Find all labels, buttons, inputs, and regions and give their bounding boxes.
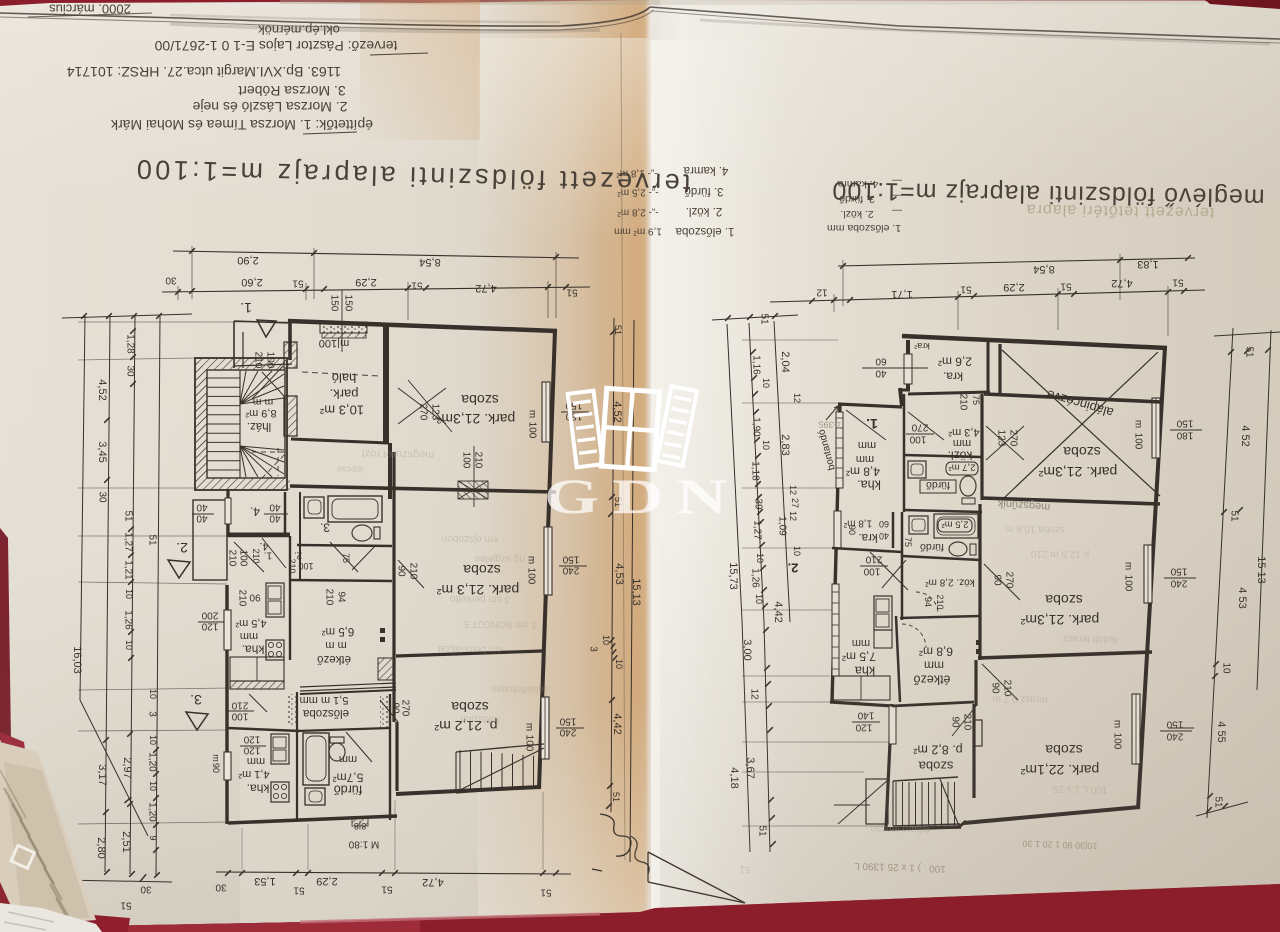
svg-text:10: 10 bbox=[124, 640, 134, 650]
svg-text:150: 150 bbox=[559, 715, 576, 726]
svg-text:1-395: 1-395 bbox=[818, 419, 841, 430]
svg-text:12: 12 bbox=[788, 511, 798, 521]
svg-text:m: m bbox=[526, 410, 537, 418]
svg-text:4,52: 4,52 bbox=[611, 401, 623, 422]
svg-text:lház.: lház. bbox=[247, 420, 271, 432]
svg-text:szoba: szoba bbox=[1063, 444, 1101, 460]
svg-text:2,04: 2,04 bbox=[779, 351, 791, 372]
svg-text:150: 150 bbox=[562, 553, 579, 564]
svg-text:10: 10 bbox=[148, 781, 158, 791]
svg-text:2,7 m²: 2,7 m² bbox=[949, 462, 976, 473]
svg-text:1. előszoba: 1. előszoba bbox=[675, 225, 734, 237]
svg-text:2,60: 2,60 bbox=[241, 276, 262, 288]
svg-text:—: — bbox=[892, 204, 902, 215]
svg-text:6,5 m²: 6,5 m² bbox=[322, 625, 355, 637]
svg-text:4. kamra: 4. kamra bbox=[683, 164, 728, 176]
svg-text:100: 100 bbox=[909, 433, 926, 444]
svg-text:tervező: Pásztor Lajos E-1 0: tervező: Pásztor Lajos E-1 0 1-2671/00 bbox=[154, 38, 397, 54]
svg-text:100: 100 bbox=[525, 568, 536, 585]
svg-text:90: 90 bbox=[249, 591, 261, 602]
svg-text:szoba: szoba bbox=[461, 392, 499, 408]
svg-text:210: 210 bbox=[287, 558, 297, 573]
svg-text:3.: 3. bbox=[320, 521, 330, 535]
svg-text:salakfeltoltes: salakfeltoltes bbox=[491, 683, 549, 695]
svg-text:m: m bbox=[211, 754, 221, 762]
svg-text:60: 60 bbox=[875, 355, 887, 366]
svg-text:2,80: 2,80 bbox=[95, 837, 107, 858]
svg-text:210: 210 bbox=[957, 394, 968, 411]
svg-text:lepcso: lepcso bbox=[337, 465, 363, 475]
svg-text:építtetők: 1. Morzsa Tímea és: építtetők: 1. Morzsa Tímea és Mohai Márk bbox=[110, 117, 373, 133]
svg-text:100: 100 bbox=[526, 422, 537, 439]
svg-text:210: 210 bbox=[252, 352, 263, 369]
svg-text:100: 100 bbox=[237, 550, 248, 567]
svg-text:előszoba: előszoba bbox=[302, 707, 349, 719]
svg-text:10: 10 bbox=[761, 440, 771, 450]
svg-text:100: 100 bbox=[264, 352, 275, 369]
svg-text:feljaro lepcso: feljaro lepcso bbox=[870, 823, 930, 835]
svg-text:210: 210 bbox=[231, 699, 248, 710]
svg-text:270: 270 bbox=[399, 700, 410, 717]
svg-text:-„- 2,8 m²: -„- 2,8 m² bbox=[617, 206, 659, 217]
svg-text:1,20: 1,20 bbox=[146, 752, 157, 772]
svg-text:kra²: kra² bbox=[914, 341, 930, 351]
svg-text:1. előszoba mm: 1. előszoba mm bbox=[827, 222, 901, 234]
svg-text:3,45: 3,45 bbox=[96, 441, 108, 462]
svg-text:m m: m m bbox=[325, 639, 346, 651]
svg-text:4.: 4. bbox=[250, 505, 260, 519]
svg-text:3.: 3. bbox=[190, 692, 202, 708]
svg-text:kha.: kha. bbox=[247, 782, 270, 796]
svg-text:4. kamra: 4. kamra bbox=[837, 178, 878, 190]
svg-text:4,72: 4,72 bbox=[475, 282, 496, 294]
svg-text:park.: park. bbox=[330, 386, 359, 401]
svg-text:12: 12 bbox=[788, 485, 798, 495]
svg-text:51: 51 bbox=[611, 792, 621, 802]
svg-text:1,53: 1,53 bbox=[254, 875, 275, 887]
svg-text:1,71: 1,71 bbox=[891, 288, 912, 300]
svg-text:27: 27 bbox=[790, 498, 800, 508]
svg-text:210: 210 bbox=[251, 548, 261, 563]
svg-text:szoba: szoba bbox=[451, 699, 489, 715]
svg-text:40: 40 bbox=[875, 367, 887, 378]
svg-text:120: 120 bbox=[243, 733, 260, 744]
svg-text:30: 30 bbox=[96, 491, 107, 503]
svg-text:51: 51 bbox=[293, 884, 305, 895]
svg-text:fürdő: fürdő bbox=[334, 783, 363, 797]
svg-text:2,83: 2,83 bbox=[779, 434, 791, 455]
svg-text:51: 51 bbox=[411, 279, 423, 290]
svg-text:1.: 1. bbox=[240, 300, 252, 316]
svg-text:2,90: 2,90 bbox=[237, 254, 258, 266]
svg-text:40: 40 bbox=[269, 501, 281, 512]
svg-text:4,8 m²: 4,8 m² bbox=[846, 465, 880, 479]
svg-text:100: 100 bbox=[1132, 433, 1143, 450]
svg-text:4,1 m²: 4,1 m² bbox=[238, 768, 270, 780]
svg-text:51: 51 bbox=[120, 899, 132, 910]
svg-text:m: m bbox=[1132, 420, 1143, 428]
svg-text:megszuret rozt: megszuret rozt bbox=[362, 447, 435, 460]
svg-text:2. közl.: 2. közl. bbox=[840, 208, 873, 220]
svg-text:270: 270 bbox=[1007, 430, 1018, 447]
svg-text:foldszinti: foldszinti bbox=[460, 713, 499, 725]
svg-text:kha.: kha. bbox=[857, 478, 881, 492]
svg-text:3: 3 bbox=[587, 646, 598, 652]
svg-text:M 1:80: M 1:80 bbox=[348, 838, 379, 849]
svg-text:1,26: 1,26 bbox=[122, 610, 133, 630]
svg-text:4,42: 4,42 bbox=[611, 713, 623, 734]
svg-text:—: — bbox=[892, 174, 902, 185]
svg-text:40: 40 bbox=[196, 501, 208, 512]
svg-text:p 12,5 m 210: p 12,5 m 210 bbox=[1030, 548, 1089, 560]
svg-text:mm: mm bbox=[856, 453, 874, 465]
svg-text:2.: 2. bbox=[176, 540, 188, 556]
svg-text:1163. Bp.XVI.Margit utca.27.: 1163. Bp.XVI.Margit utca.27. HRSZ: 10171… bbox=[67, 64, 342, 80]
svg-text:kha.: kha. bbox=[242, 643, 265, 657]
svg-text:4,3 m²: 4,3 m² bbox=[948, 426, 980, 438]
svg-text:8,54: 8,54 bbox=[419, 256, 440, 268]
svg-text:51: 51 bbox=[1243, 346, 1254, 358]
svg-text:51: 51 bbox=[122, 510, 133, 522]
svg-text:2,6 m²: 2,6 m² bbox=[938, 355, 972, 369]
svg-text:1,83: 1,83 bbox=[1137, 258, 1158, 270]
svg-text:tervezett tetőtéri alapra: tervezett tetőtéri alapra bbox=[1026, 201, 1215, 221]
svg-text:200: 200 bbox=[201, 609, 218, 620]
svg-text:4,72: 4,72 bbox=[1111, 277, 1132, 289]
svg-text:1,90: 1,90 bbox=[750, 417, 761, 437]
svg-text:—: — bbox=[892, 189, 902, 200]
svg-text:123: 123 bbox=[995, 430, 1006, 447]
svg-text:m: m bbox=[523, 723, 534, 731]
svg-text:haló: haló bbox=[332, 370, 357, 385]
svg-text:51: 51 bbox=[146, 534, 157, 546]
svg-text:30: 30 bbox=[124, 365, 135, 377]
svg-text:2,51: 2,51 bbox=[120, 831, 132, 852]
svg-text:fürdő: fürdő bbox=[926, 479, 950, 491]
svg-text:okl.ép.mérnök: okl.ép.mérnök bbox=[258, 22, 340, 37]
svg-text:9: 9 bbox=[148, 835, 158, 840]
svg-text:m: m bbox=[525, 556, 536, 564]
svg-text:3,17: 3,17 bbox=[96, 764, 108, 785]
svg-text:8,9 m²: 8,9 m² bbox=[245, 407, 277, 419]
svg-text:1,16: 1,16 bbox=[750, 355, 761, 375]
svg-text:210: 210 bbox=[236, 590, 247, 607]
svg-text:1,21: 1,21 bbox=[122, 560, 133, 580]
svg-text:1,18: 1,18 bbox=[749, 461, 760, 481]
svg-text:100 L 1 x 25: 100 L 1 x 25 bbox=[1052, 783, 1107, 795]
svg-text:em ojszobon: em ojszobon bbox=[442, 533, 499, 545]
svg-text:51: 51 bbox=[292, 277, 304, 288]
svg-text:m m: m m bbox=[253, 396, 274, 408]
svg-text:3. fürdő: 3. fürdő bbox=[685, 185, 724, 197]
svg-text:210: 210 bbox=[323, 589, 334, 606]
svg-text:51: 51 bbox=[1172, 276, 1184, 287]
svg-text:150: 150 bbox=[328, 295, 339, 312]
svg-text:90: 90 bbox=[211, 763, 221, 773]
svg-text:270: 270 bbox=[911, 421, 928, 432]
svg-text:10: 10 bbox=[614, 659, 624, 669]
svg-text:4,5 m²: 4,5 m² bbox=[235, 617, 267, 629]
svg-text:terasz 9,2 m: terasz 9,2 m bbox=[992, 693, 1047, 705]
svg-text:210: 210 bbox=[407, 563, 418, 580]
svg-text:10: 10 bbox=[601, 635, 611, 645]
svg-text:100: 100 bbox=[523, 735, 534, 752]
svg-text:m|100: m|100 bbox=[319, 337, 349, 349]
svg-text:100: 100 bbox=[298, 561, 313, 571]
svg-text:mm: mm bbox=[247, 755, 265, 767]
svg-text:4.: 4. bbox=[259, 540, 268, 552]
svg-text:51: 51 bbox=[960, 283, 972, 294]
svg-text:3: 3 bbox=[146, 711, 157, 717]
svg-text:75: 75 bbox=[341, 553, 351, 563]
svg-text:mm: mm bbox=[858, 439, 876, 451]
svg-text:3. fürdő: 3. fürdő bbox=[839, 193, 875, 205]
svg-text:4,53: 4,53 bbox=[613, 563, 625, 584]
svg-text:75: 75 bbox=[971, 395, 981, 405]
svg-text:2,29: 2,29 bbox=[1003, 281, 1024, 293]
svg-text:4,52: 4,52 bbox=[96, 379, 108, 400]
svg-text:90: 90 bbox=[389, 702, 400, 714]
svg-text:210: 210 bbox=[226, 550, 237, 567]
svg-text:30: 30 bbox=[215, 881, 227, 892]
svg-text:mm: mm bbox=[240, 630, 258, 642]
svg-text:150: 150 bbox=[1176, 417, 1193, 428]
svg-text:szoba 10,6 m: szoba 10,6 m bbox=[1005, 523, 1065, 535]
svg-text:park. 21,3m²: park. 21,3m² bbox=[1038, 464, 1117, 480]
svg-text:39: 39 bbox=[752, 498, 763, 510]
svg-text:mm: mm bbox=[953, 437, 971, 449]
svg-text:cm betonaljzat: cm betonaljzat bbox=[437, 643, 502, 655]
svg-text:-„- 2,5 m²: -„- 2,5 m² bbox=[617, 186, 659, 197]
svg-text:közl.: közl. bbox=[948, 449, 973, 463]
svg-text:15,13: 15,13 bbox=[630, 578, 642, 606]
svg-text:180: 180 bbox=[1176, 429, 1193, 440]
svg-text:10: 10 bbox=[148, 689, 158, 699]
svg-text:150: 150 bbox=[342, 295, 353, 312]
svg-text:1,9 m² mm: 1,9 m² mm bbox=[614, 225, 662, 236]
svg-text:51: 51 bbox=[758, 313, 769, 325]
svg-text:51: 51 bbox=[381, 883, 393, 894]
svg-text:10,3 m²: 10,3 m² bbox=[319, 402, 364, 417]
svg-text:2,97: 2,97 bbox=[121, 757, 133, 778]
svg-text:GDN: GDN bbox=[544, 469, 740, 524]
svg-text:30: 30 bbox=[140, 883, 152, 894]
svg-text:2. Morzsa László és neje: 2. Morzsa László és neje bbox=[192, 99, 347, 115]
svg-text:51: 51 bbox=[739, 863, 751, 874]
svg-text:8,54: 8,54 bbox=[1033, 263, 1054, 275]
svg-text:51: 51 bbox=[540, 886, 552, 897]
svg-text:100: 100 bbox=[231, 710, 248, 721]
svg-text:1,28: 1,28 bbox=[124, 334, 135, 354]
svg-text:12: 12 bbox=[792, 393, 802, 403]
svg-text:fedott terasz: fedott terasz bbox=[1062, 633, 1117, 645]
svg-text:4 52: 4 52 bbox=[1239, 425, 1251, 446]
svg-text:100: 100 bbox=[460, 452, 471, 469]
svg-text:2,29: 2,29 bbox=[355, 276, 376, 288]
svg-text:16,03: 16,03 bbox=[71, 646, 83, 674]
svg-text:ng szgjeles: ng szgjeles bbox=[475, 553, 525, 565]
svg-text:1,20: 1,20 bbox=[146, 802, 157, 822]
svg-text:51: 51 bbox=[1060, 280, 1072, 291]
svg-text:10: 10 bbox=[124, 589, 134, 599]
svg-text:-„- 1,8 m²: -„- 1,8 m² bbox=[616, 167, 658, 178]
svg-text:park. 21,3m²: park. 21,3m² bbox=[436, 411, 515, 427]
svg-text:1,27: 1,27 bbox=[122, 532, 133, 552]
svg-text:3. Morzsa Róbert: 3. Morzsa Róbert bbox=[238, 83, 345, 99]
svg-text:5,1 m mm: 5,1 m mm bbox=[300, 694, 349, 706]
svg-text:90: 90 bbox=[395, 565, 406, 577]
svg-text:2. közl.: 2. közl. bbox=[686, 205, 722, 217]
svg-text:51: 51 bbox=[566, 286, 578, 297]
svg-text:12: 12 bbox=[816, 286, 828, 297]
svg-text:étkező: étkező bbox=[317, 653, 351, 665]
svg-text:kra.: kra. bbox=[943, 370, 963, 384]
svg-text:1 cm BONGJT 5: 1 cm BONGJT 5 bbox=[463, 618, 537, 630]
svg-text:10: 10 bbox=[761, 378, 771, 388]
svg-text:51: 51 bbox=[613, 325, 623, 335]
svg-text:2,29: 2,29 bbox=[316, 875, 337, 887]
svg-text:3 cm perkelto: 3 cm perkelto bbox=[449, 593, 510, 605]
svg-text:30: 30 bbox=[165, 274, 177, 285]
svg-text:4,72: 4,72 bbox=[422, 876, 443, 888]
svg-text:94: 94 bbox=[335, 591, 346, 603]
svg-text:10: 10 bbox=[148, 735, 158, 745]
